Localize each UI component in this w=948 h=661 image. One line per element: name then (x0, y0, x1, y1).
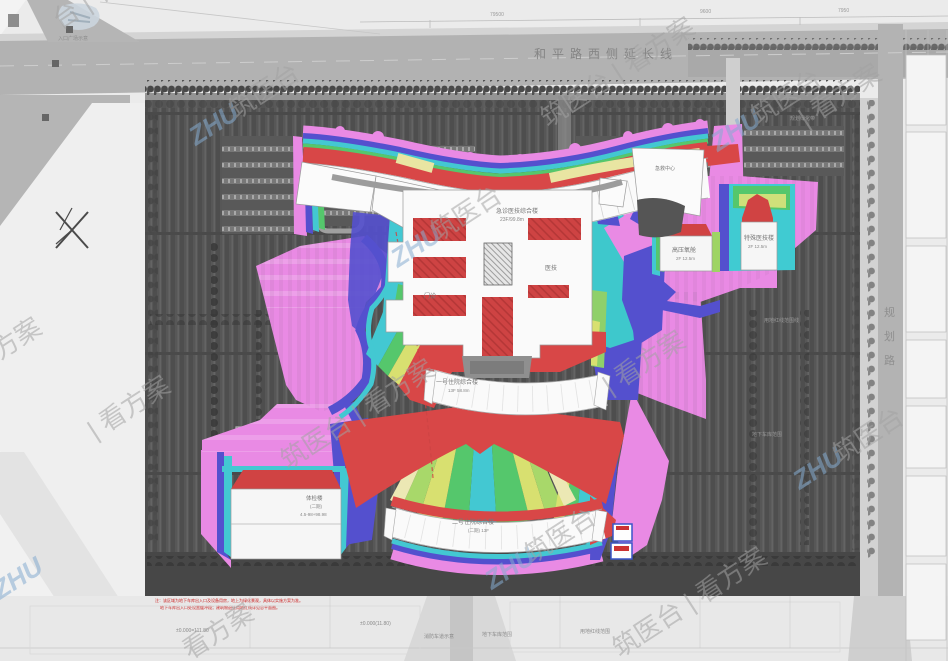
svg-text:急救中心: 急救中心 (655, 165, 675, 172)
svg-text:规: 规 (884, 305, 895, 319)
svg-text:79500: 79500 (490, 12, 504, 18)
svg-text:地下车库出入口处设置缓冲段；建筑物退让用地红线详见总平面图。: 地下车库出入口处设置缓冲段；建筑物退让用地红线详见总平面图。 (160, 604, 280, 610)
svg-text:4.5-98+98.98: 4.5-98+98.98 (300, 512, 327, 517)
svg-text:门诊: 门诊 (424, 292, 436, 300)
svg-text:注：该区域为地下车库出入口及设备用房，地上为绿化景观，具体以: 注：该区域为地下车库出入口及设备用房，地上为绿化景观，具体以实施方案为准。 (155, 597, 303, 603)
svg-text:地下车库范围: 地下车库范围 (752, 431, 782, 438)
svg-text:划: 划 (884, 330, 895, 343)
svg-text:地下车库范围: 地下车库范围 (482, 631, 512, 638)
svg-text:13F 58.8m: 13F 58.8m (448, 388, 470, 393)
svg-text:医技: 医技 (545, 264, 557, 272)
svg-text:特殊医技楼: 特殊医技楼 (744, 234, 774, 242)
svg-text:±0.000(11.80): ±0.000(11.80) (360, 621, 391, 627)
svg-text:2F 12.5m: 2F 12.5m (748, 244, 767, 249)
svg-text:高压氧舱: 高压氧舱 (672, 246, 696, 254)
svg-text:2F 12.5m: 2F 12.5m (676, 256, 695, 261)
svg-text:23F/99.8m: 23F/99.8m (500, 217, 524, 223)
svg-text:7950: 7950 (838, 8, 849, 14)
svg-text:一号住院综合楼: 一号住院综合楼 (436, 378, 478, 386)
svg-text:9600: 9600 (700, 9, 711, 15)
svg-text:用地红线范围线: 用地红线范围线 (764, 317, 799, 324)
svg-text:急诊医技综合楼: 急诊医技综合楼 (496, 207, 538, 215)
svg-text:消防车道示意: 消防车道示意 (424, 633, 454, 640)
svg-text:体检楼: 体检楼 (306, 494, 323, 502)
svg-text:二号住院综合楼: 二号住院综合楼 (452, 518, 494, 526)
svg-text:入口广场示意: 入口广场示意 (58, 35, 88, 42)
svg-text:路: 路 (884, 354, 895, 367)
svg-text:用地红线范围: 用地红线范围 (580, 628, 610, 635)
